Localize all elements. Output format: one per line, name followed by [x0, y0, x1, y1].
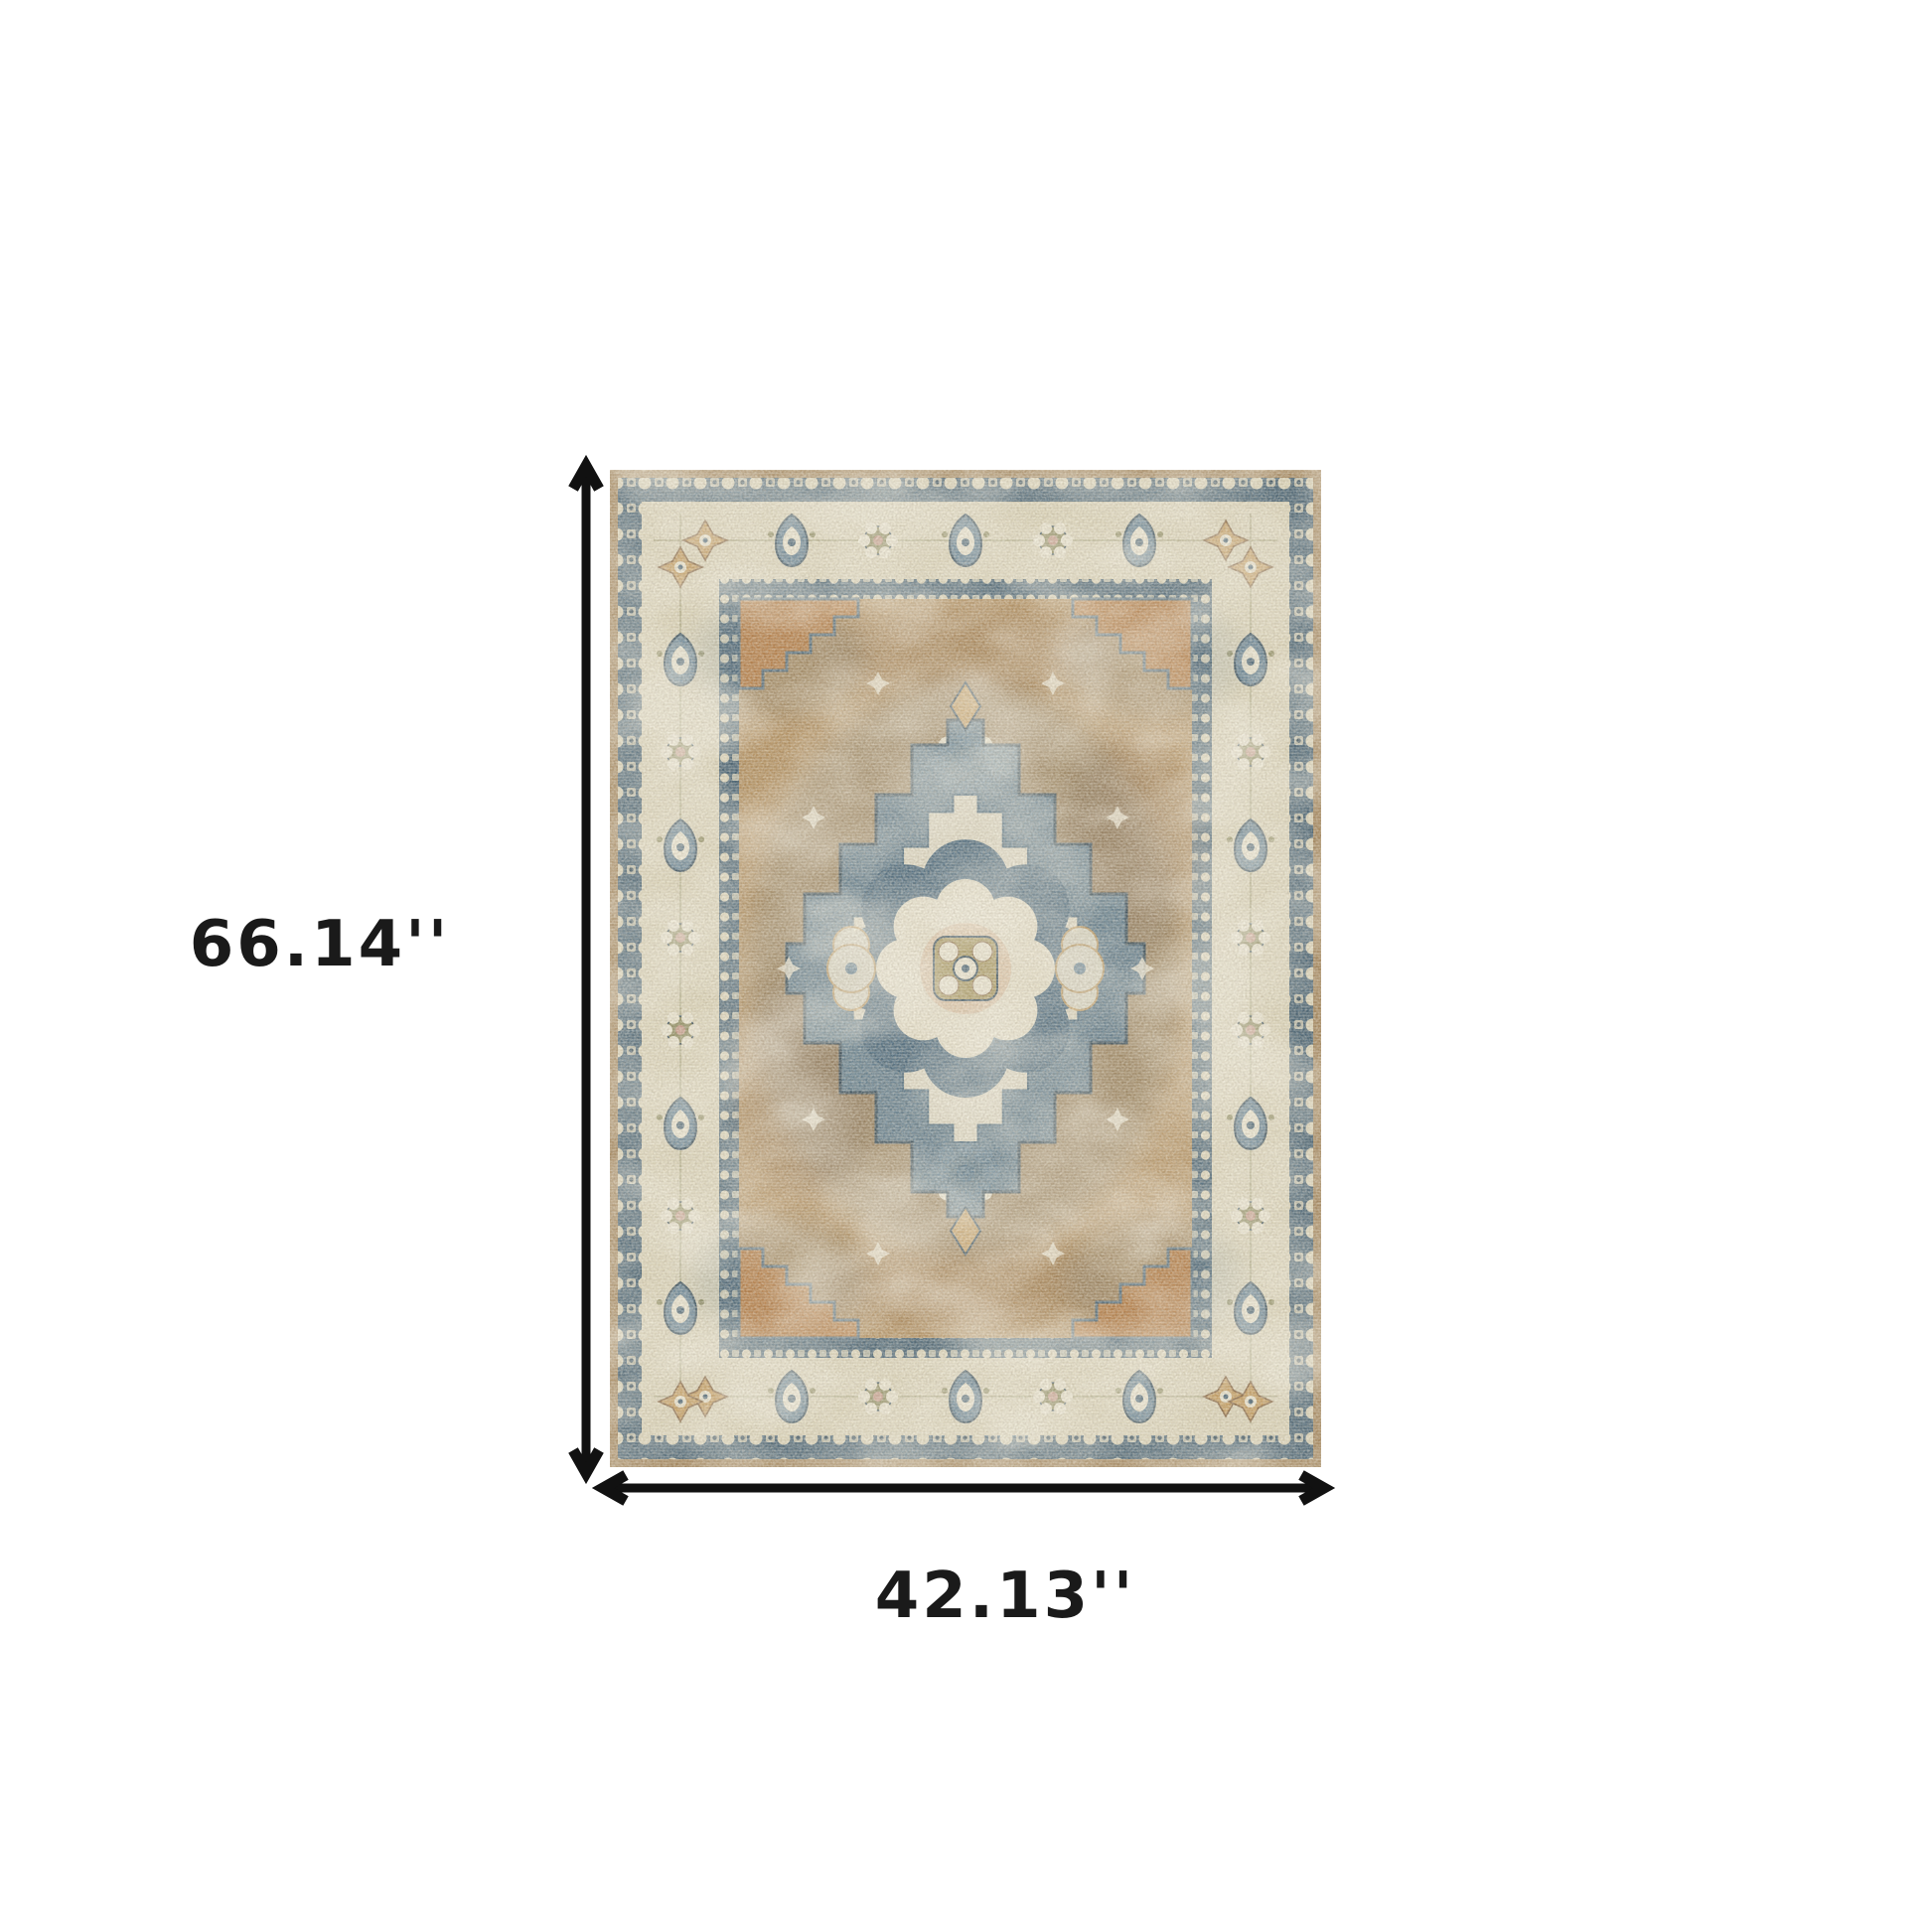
- rug-texture-overlays: [610, 470, 1321, 1467]
- product-dimension-diagram: 66.14'' 42.13'': [0, 0, 1932, 1932]
- arrowhead-down-icon: [573, 1450, 599, 1473]
- rug-image: [610, 470, 1321, 1467]
- width-arrow: [603, 1475, 1324, 1501]
- width-dimension-label: 42.13'': [875, 1560, 1136, 1633]
- height-arrow: [573, 466, 599, 1473]
- arrowhead-right-icon: [1301, 1475, 1324, 1501]
- arrowhead-up-icon: [573, 466, 599, 489]
- rug-illustration: [610, 470, 1321, 1467]
- arrowhead-left-icon: [603, 1475, 626, 1501]
- height-dimension-label: 66.14'': [190, 908, 451, 981]
